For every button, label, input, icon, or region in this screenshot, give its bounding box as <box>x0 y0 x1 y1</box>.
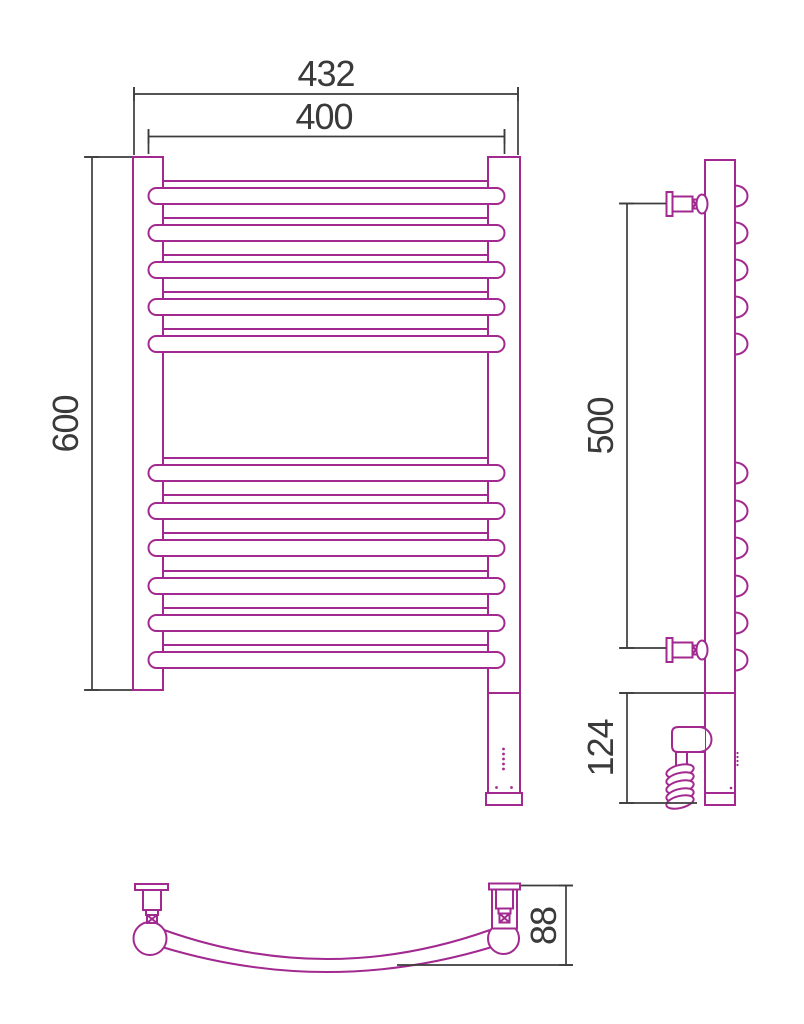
rail-tube <box>149 465 505 481</box>
rail-tube <box>149 615 505 631</box>
left-wall-bracket <box>135 884 168 923</box>
dimension-depth: 88 <box>397 886 573 966</box>
housing-cap <box>486 793 522 805</box>
side-view: 500 124 <box>580 160 748 811</box>
tube-arc-top <box>164 930 490 959</box>
dim-label-bracket-span: 500 <box>580 397 621 454</box>
rail-tube <box>149 262 505 278</box>
technical-drawing: 432 400 600 <box>0 0 804 1024</box>
rail-tube <box>149 503 505 519</box>
right-wall-bracket <box>489 884 520 929</box>
heating-element-housing <box>486 693 522 805</box>
dim-label-tube-length: 400 <box>295 96 352 137</box>
rail-tube <box>149 225 505 241</box>
housing-body <box>488 693 520 793</box>
dimension-height: 600 <box>45 157 132 690</box>
left-collector <box>134 922 167 955</box>
dimension-tube-length: 400 <box>149 96 505 154</box>
rail-tube <box>149 299 505 315</box>
side-post <box>705 160 735 793</box>
bottom-valve-fitting <box>667 638 708 662</box>
rail-tube <box>149 188 505 204</box>
side-tube-bumps <box>735 186 748 671</box>
dim-label-depth: 88 <box>523 907 564 945</box>
dim-label-lower-section: 124 <box>580 719 621 776</box>
bottom-view: 88 <box>134 884 574 973</box>
dim-label-overall-width: 432 <box>297 53 354 94</box>
dim-label-height: 600 <box>45 395 86 452</box>
drawing-canvas: 432 400 600 <box>0 0 804 1024</box>
front-rails <box>149 181 505 668</box>
side-post-cap <box>705 793 735 805</box>
rail-tube <box>149 578 505 594</box>
rail-tube <box>149 336 505 352</box>
rail-tube <box>149 652 505 668</box>
rail-tube <box>149 540 505 556</box>
top-valve-fitting <box>667 192 708 216</box>
dimension-bracket-span: 500 <box>580 204 666 649</box>
front-view: 432 400 600 <box>45 53 522 805</box>
